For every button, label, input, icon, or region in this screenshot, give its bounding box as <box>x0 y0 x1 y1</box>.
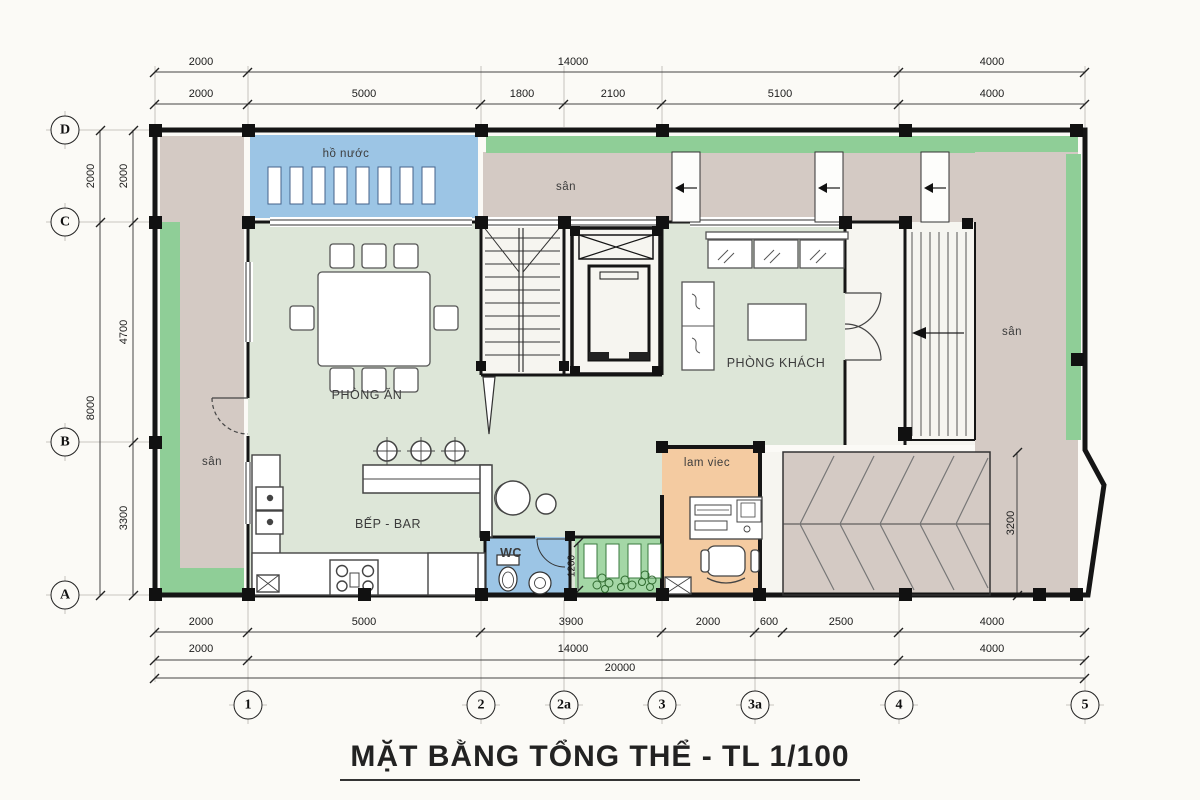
room-label-yard-top: sân <box>556 181 576 193</box>
dim-label: 5100 <box>768 88 792 100</box>
dim-label: 20000 <box>605 662 636 674</box>
dim-label: 2100 <box>601 88 625 100</box>
room-label-water-tank: hồ nước <box>323 148 370 160</box>
water-tank-slats <box>268 167 435 204</box>
grid-bubble-row-b: B <box>51 428 80 457</box>
grid-bubble-row-d: D <box>51 116 80 145</box>
dim-label: 4000 <box>980 616 1004 628</box>
dining-furniture <box>290 244 458 392</box>
living-furniture <box>682 232 848 370</box>
dim-label: 2000 <box>85 164 97 188</box>
room-label-yard-right: sân <box>1002 326 1022 338</box>
dim-label: 4000 <box>980 56 1004 68</box>
grid-bubble-col-2a: 2a <box>550 691 579 720</box>
drawing-title: MẶT BẰNG TỔNG THỂ - TL 1/100 <box>340 740 859 781</box>
drawing-title-row: MẶT BẰNG TỔNG THỂ - TL 1/100 <box>0 740 1200 781</box>
dim-label: 4000 <box>980 88 1004 100</box>
dim-label: 2500 <box>829 616 853 628</box>
floor-plan: 2000 14000 4000 2000 5000 1800 2100 5100… <box>0 0 1200 800</box>
dim-label: 5000 <box>352 88 376 100</box>
grid-bubble-col-3a: 3a <box>741 691 770 720</box>
dim-label: 3300 <box>118 506 130 530</box>
dim-label: 1200 <box>567 555 578 577</box>
grid-bubble-row-a: A <box>51 581 80 610</box>
entry-steps <box>912 232 966 436</box>
grid-bubble-col-3: 3 <box>648 691 677 720</box>
dim-label: 2000 <box>118 164 130 188</box>
grid-bubble-col-5: 5 <box>1071 691 1100 720</box>
dim-label: 600 <box>760 616 778 628</box>
dim-label: 3200 <box>1005 511 1017 535</box>
yard-gates <box>672 152 949 222</box>
ramp-hatching <box>783 452 990 595</box>
room-label-yard-left: sân <box>202 456 222 468</box>
dim-label: 2000 <box>189 643 213 655</box>
dim-label: 5000 <box>352 616 376 628</box>
study-furniture <box>665 497 762 594</box>
dim-label: 1800 <box>510 88 534 100</box>
garden-plants <box>584 544 661 593</box>
room-label-dining: PHÒNG ĂN <box>332 388 403 402</box>
dim-label: 3900 <box>559 616 583 628</box>
dim-label: 14000 <box>558 56 589 68</box>
dim-label: 4000 <box>980 643 1004 655</box>
dim-label: 4700 <box>118 320 130 344</box>
room-label-kitchen-bar: BẾP - BAR <box>355 517 421 531</box>
dim-label: 14000 <box>558 643 589 655</box>
grid-bubble-col-1: 1 <box>234 691 263 720</box>
grid-bubble-col-2: 2 <box>467 691 496 720</box>
grid-bubble-row-c: C <box>51 208 80 237</box>
dim-label: 2000 <box>189 88 213 100</box>
dim-label: 2000 <box>696 616 720 628</box>
dim-label: 2000 <box>189 56 213 68</box>
room-label-living: PHÒNG KHÁCH <box>727 356 826 370</box>
grid-bubble-col-4: 4 <box>885 691 914 720</box>
room-label-wc: WC <box>500 546 522 560</box>
room-label-study: lam viec <box>684 457 730 469</box>
floor-plan-linework <box>0 0 1200 800</box>
dim-label: 8000 <box>85 396 97 420</box>
stairs <box>483 226 561 434</box>
elevator <box>572 228 660 374</box>
dim-label: 2000 <box>189 616 213 628</box>
